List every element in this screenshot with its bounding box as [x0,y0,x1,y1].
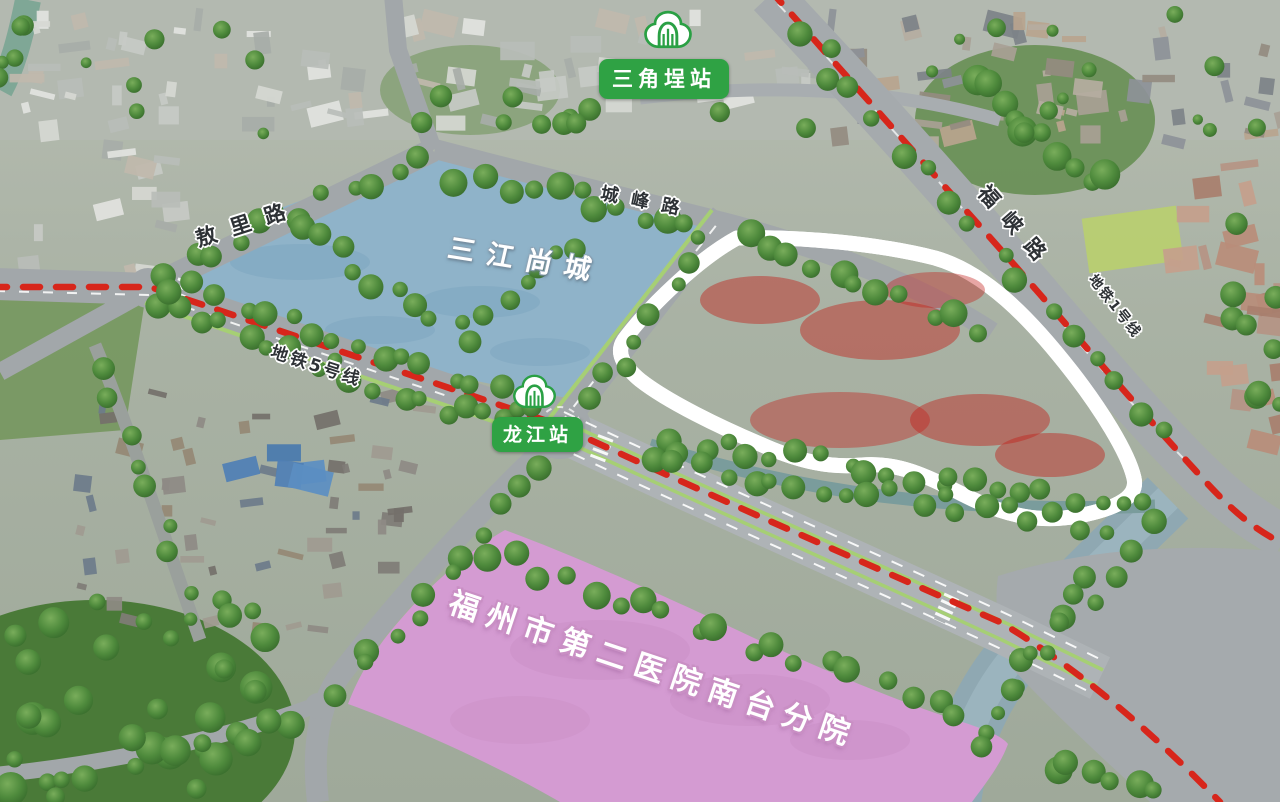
building [159,106,179,124]
tree-icon [802,260,820,278]
tree-icon [783,439,807,463]
tree-icon [163,519,177,533]
tree-icon [959,216,975,232]
tree-icon [184,612,197,625]
tree-icon [1203,123,1217,137]
tree-icon [574,182,591,199]
tree-icon [547,172,575,200]
tree-icon [1087,595,1103,611]
tree-icon [500,180,524,204]
tree-icon [991,706,1005,720]
building [165,81,177,97]
tree-icon [156,279,181,304]
tree-icon [119,724,146,751]
building [371,445,393,460]
tree-icon [844,276,861,293]
tree-icon [940,299,968,327]
building [1192,175,1222,199]
tree-icon [180,271,203,294]
tree-icon [939,468,958,487]
building [606,99,632,113]
tree-icon [184,586,198,600]
building [162,479,170,490]
tree-icon [323,333,339,349]
tree-icon [11,17,29,35]
tree-icon [256,708,281,733]
tree-icon [913,494,936,517]
tree-icon [1040,101,1058,119]
tree-icon [578,387,601,410]
tree-icon [583,582,611,610]
tree-icon [277,711,305,739]
building [436,116,465,131]
tree-icon [1057,93,1069,105]
tree-icon [194,734,212,752]
building [307,538,332,552]
tree-icon [391,629,406,644]
tree-icon [333,236,355,258]
tree-icon [215,659,234,678]
tree-icon [1063,584,1084,605]
tree-icon [411,112,432,133]
tree-icon [1134,493,1151,510]
tree-icon [851,460,876,485]
tree-icon [1029,479,1050,500]
tree-icon [1106,566,1128,588]
tree-icon [97,387,118,408]
aerial-parcel-map: 敖里路 城峰路 地铁5号线 福峡路 地铁1号线 三江尚城 福州市第二医院南台分院… [0,0,1280,802]
tree-icon [163,630,179,646]
building [118,31,127,45]
tree-icon [1246,381,1271,406]
tree-icon [796,118,816,138]
tree-icon [652,601,670,619]
tree-icon [81,57,92,68]
tree-icon [490,375,514,399]
tree-icon [863,110,879,126]
tree-icon [1070,521,1090,541]
tree-icon [195,702,226,733]
tree-icon [459,330,482,353]
building [326,528,347,533]
tree-icon [617,358,637,378]
tree-icon [945,503,964,522]
tree-icon [975,494,999,518]
tree-icon [761,452,776,467]
tree-icon [454,394,478,418]
tree-icon [1065,158,1084,177]
tree-icon [672,277,686,291]
tree-icon [954,34,965,45]
building [462,18,486,36]
tree-icon [691,230,705,244]
tree-icon [1062,325,1085,348]
tree-icon [1047,25,1059,37]
building [267,444,301,461]
tree-icon [64,686,93,715]
building [1142,75,1175,82]
tree-icon [490,493,512,515]
tree-icon [761,474,776,489]
tree-icon [721,469,737,485]
building [1219,364,1249,387]
building [214,54,227,69]
building [1171,108,1185,125]
tree-icon [411,391,426,406]
tree-icon [359,174,384,199]
tree-icon [1129,402,1153,426]
tree-icon [93,634,119,660]
tree-icon [1156,422,1173,439]
tree-icon [732,444,757,469]
tree-icon [351,339,366,354]
tree-icon [144,29,164,49]
tree-icon [244,680,267,703]
tree-icon [1193,114,1203,124]
building [394,508,404,522]
tree-icon [92,357,115,380]
tree-icon [1053,750,1078,775]
tree-icon [308,223,331,246]
building [252,414,270,420]
tree-icon [938,487,953,502]
tree-icon [501,290,521,310]
tree-icon [460,375,479,394]
tree-icon [1101,772,1119,790]
station-badge-sanjiaocheng: 三角埕站 [599,59,729,99]
tree-icon [217,603,242,628]
tree-icon [300,323,324,347]
tree-icon [251,623,280,652]
building [352,511,359,519]
tree-icon [122,426,142,446]
tree-icon [637,303,660,326]
building [239,421,251,434]
tree-icon [699,613,727,641]
tree-icon [787,21,812,46]
building [73,474,92,493]
tree-icon [1001,497,1018,514]
building [500,42,534,60]
tree-icon [160,735,191,766]
tree-icon [1017,511,1037,531]
building [1254,263,1264,285]
tree-icon [1032,123,1051,142]
tree-icon [566,113,586,133]
tree-icon [187,779,207,799]
tree-icon [392,164,408,180]
tree-icon [364,383,380,399]
building [1013,12,1025,30]
tree-icon [862,279,888,305]
building [28,64,61,71]
building [99,412,117,425]
building [345,107,364,127]
building [10,74,45,83]
tree-icon [881,480,897,496]
tree-icon [525,180,543,198]
tree-icon [502,87,523,108]
fuzhou-metro-logo-icon [643,9,693,59]
tree-icon [393,348,409,364]
station-badge-longjiang: 龙江站 [492,417,583,452]
tree-icon [822,39,841,58]
tree-icon [245,50,264,69]
tree-icon [430,85,452,107]
tree-icon [406,146,429,169]
tree-icon [1014,122,1035,143]
tree-icon [1002,267,1027,292]
tree-icon [358,274,383,299]
tree-icon [344,264,360,280]
tree-icon [836,76,858,98]
tree-icon [313,185,329,201]
building [151,192,180,208]
tree-icon [473,544,501,572]
tree-icon [969,324,987,342]
tree-icon [892,144,917,169]
tree-icon [147,699,168,720]
tree-icon [244,603,261,620]
tree-icon [455,315,470,330]
building [38,119,59,142]
tree-icon [1220,281,1246,307]
tree-icon [816,68,839,91]
tree-icon [72,765,98,791]
tree-icon [758,632,783,657]
tree-icon [4,625,26,647]
building [34,224,43,241]
tree-icon [496,114,512,130]
tree-icon [592,362,613,383]
tree-icon [854,482,879,507]
tree-icon [209,312,225,328]
tree-icon [879,671,897,689]
tree-icon [1166,6,1183,23]
tree-icon [558,566,576,584]
tree-icon [1049,612,1069,632]
tree-icon [126,77,142,93]
tree-icon [1001,678,1024,701]
building [1073,78,1103,98]
tree-icon [1046,303,1062,319]
tree-icon [252,301,277,326]
building [180,556,204,563]
tree-icon [1204,56,1224,76]
building [378,562,400,574]
building [1177,206,1209,222]
building [1062,36,1086,42]
tree-icon [937,191,961,215]
tree-icon [833,656,860,683]
tree-icon [53,771,70,788]
tree-icon [626,335,641,350]
tree-icon [926,65,938,77]
tree-icon [420,311,436,327]
building [301,50,331,70]
tree-icon [1023,646,1038,661]
tree-icon [987,18,1006,37]
tree-icon [890,285,908,303]
building [539,70,557,93]
tree-icon [15,649,41,675]
tree-icon [721,434,737,450]
tree-icon [1096,496,1111,511]
tree-icon [213,21,231,39]
tree-icon [357,654,373,670]
tree-icon [412,610,428,626]
tree-icon [963,467,987,491]
building [322,582,342,599]
tree-icon [473,305,494,326]
tree-icon [816,486,832,502]
tree-icon [473,164,498,189]
building [830,126,849,146]
tree-icon [324,684,347,707]
building [571,36,602,53]
building [83,557,97,575]
tree-icon [660,450,683,473]
building [1163,245,1200,273]
tree-icon [191,312,213,334]
tree-icon [1117,496,1132,511]
tree-icon [710,102,730,122]
tree-icon [1100,525,1115,540]
tree-icon [1248,119,1266,137]
tree-icon [1082,62,1097,77]
tree-icon [89,594,106,611]
tree-icon [691,452,713,474]
tree-icon [133,475,156,498]
tree-icon [407,352,430,375]
tree-icon [999,248,1014,263]
tree-icon [439,169,467,197]
building [1258,77,1275,95]
tree-icon [508,475,531,498]
tree-icon [129,103,145,119]
tree-icon [1090,159,1120,189]
tree-icon [902,687,924,709]
tree-icon [504,540,529,565]
building [1045,58,1075,78]
building [115,549,130,564]
building [184,534,198,551]
building [358,483,383,490]
tree-icon [6,49,23,66]
tree-icon [136,613,153,630]
building [329,497,339,510]
tree-icon [476,527,492,543]
tree-icon [38,607,69,638]
tree-icon [903,471,926,494]
building [1080,125,1100,143]
building [378,520,386,535]
tree-icon [411,583,435,607]
tree-icon [813,445,829,461]
tree-icon [781,475,805,499]
tree-icon [1104,371,1123,390]
building [340,67,365,92]
tree-icon [156,541,178,563]
tree-icon [532,115,551,134]
tree-icon [1090,351,1105,366]
tree-icon [839,488,854,503]
tree-icon [1066,493,1086,513]
tree-icon [1141,509,1166,534]
tree-icon [1225,213,1247,235]
tree-icon [1042,502,1063,523]
tree-icon [785,655,802,672]
tree-icon [16,704,41,729]
tree-icon [1120,540,1143,563]
building [348,92,362,109]
tree-icon [971,736,993,758]
tree-icon [613,597,630,614]
tree-icon [525,567,549,591]
fuzhou-metro-logo-icon [512,373,557,418]
building [112,85,122,105]
tree-icon [234,729,261,756]
tree-icon [203,284,225,306]
building [242,117,274,132]
tree-icon [287,309,302,324]
tree-icon [131,460,146,475]
tree-icon [1145,782,1162,799]
tree-icon [1040,645,1055,660]
building [107,597,122,611]
tree-icon [921,160,936,175]
building [1127,79,1152,104]
tree-icon [943,705,965,727]
tree-icon [392,282,407,297]
building [1153,37,1171,61]
tree-icon [678,252,700,274]
tree-icon [474,403,491,420]
tree-icon [1236,315,1257,336]
tree-icon [6,751,22,767]
tree-icon [526,455,551,480]
tree-icon [774,242,798,266]
tree-icon [258,128,270,140]
